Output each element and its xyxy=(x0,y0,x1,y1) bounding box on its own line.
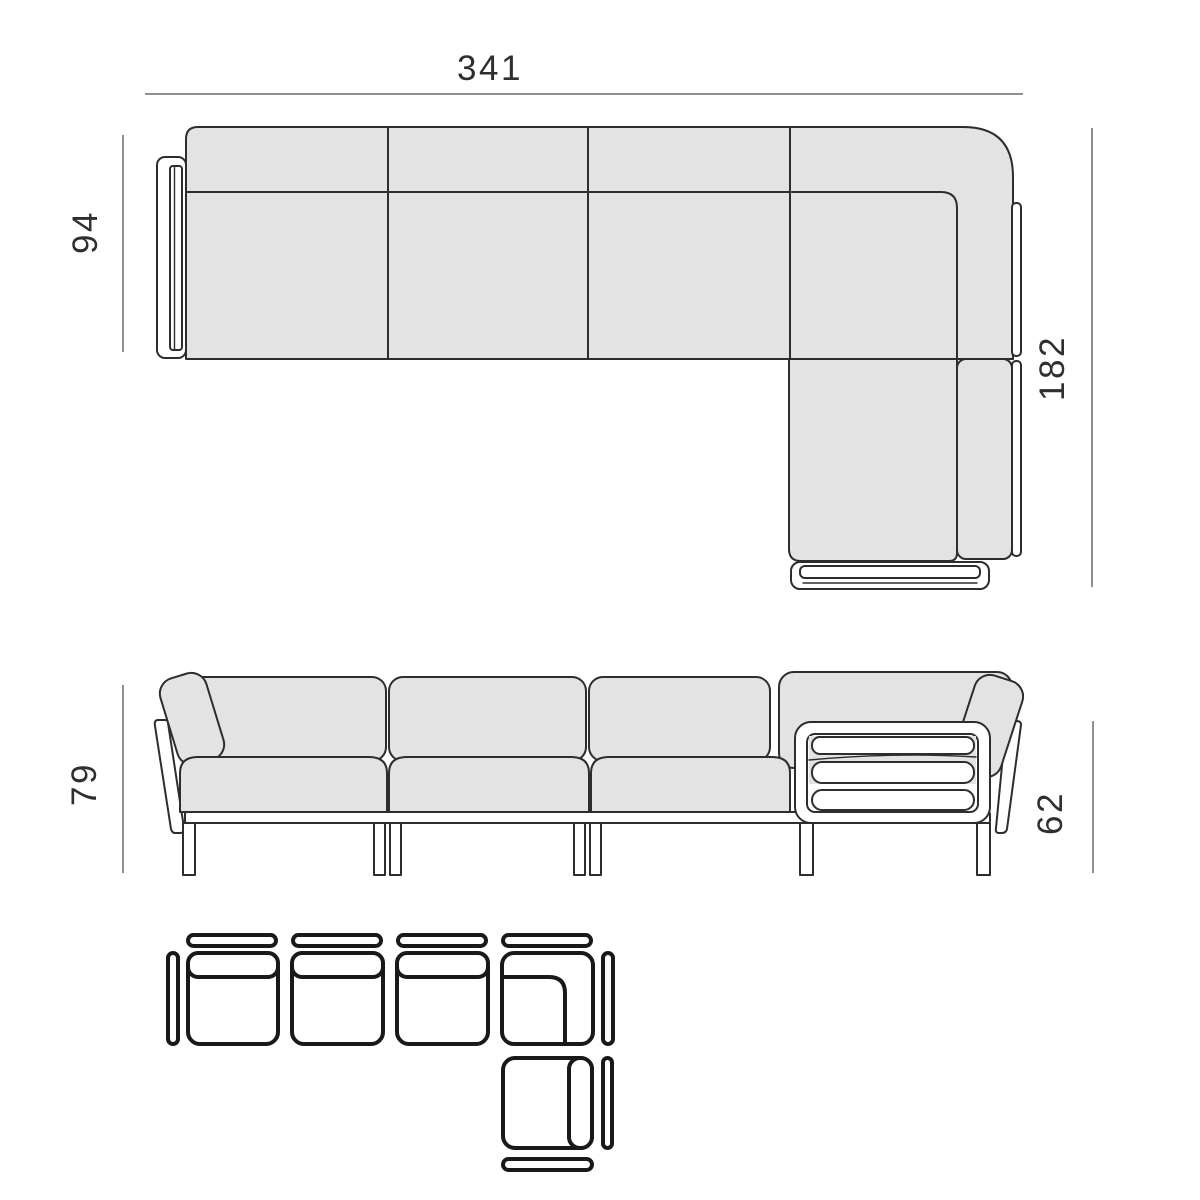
plan-chaise-backrest xyxy=(957,359,1012,559)
module-configuration xyxy=(168,935,613,1170)
module-seat-1-icon xyxy=(188,935,278,1044)
module-1-back-pill xyxy=(188,935,276,946)
front-elevation: 79 62 xyxy=(65,669,1093,875)
front-leg-frame-right xyxy=(977,823,990,875)
dim-label-depth: 94 xyxy=(66,210,105,254)
front-seat-cushion-2 xyxy=(389,757,589,812)
module-1-backrest xyxy=(188,953,278,977)
front-seat-cushion-1 xyxy=(180,757,387,812)
front-leg-frame-left xyxy=(800,823,813,875)
module-corner-icon xyxy=(502,935,613,1044)
module-seat-2-icon xyxy=(292,935,383,1044)
plan-frame-lip-upper xyxy=(1012,203,1021,356)
dim-label-width: 341 xyxy=(457,49,523,88)
module-2-backrest xyxy=(292,953,383,977)
sofa-dimension-sheet: 341 94 182 xyxy=(0,0,1200,1200)
plan-frame-lip-lower xyxy=(1012,361,1021,556)
front-leg-pair2-b xyxy=(590,823,601,875)
plan-chaise-seat xyxy=(789,359,957,561)
module-corner-body xyxy=(502,953,593,1044)
module-2-back-pill xyxy=(293,935,381,946)
front-leg-pair1-a xyxy=(374,823,385,875)
corner-frame-slat-1 xyxy=(812,737,974,754)
front-leg-pair1-b xyxy=(390,823,401,875)
dim-label-frame-height: 62 xyxy=(1031,791,1070,835)
diagram-canvas: 341 94 182 xyxy=(0,0,1200,1200)
module-chaise-right-pill xyxy=(603,1058,612,1148)
front-back-cushion-2 xyxy=(389,677,586,761)
dim-label-height: 79 xyxy=(65,762,104,806)
module-chaise-bottom-pill xyxy=(503,1159,592,1170)
corner-frame-slat-2 xyxy=(812,762,974,783)
module-chaise-end-icon xyxy=(503,1058,612,1170)
plan-sofa-body xyxy=(186,127,1013,359)
front-corner-frame xyxy=(795,722,990,823)
module-corner-back-pill xyxy=(503,935,591,946)
module-chaise-backrest xyxy=(569,1058,592,1148)
top-view-plan: 341 94 182 xyxy=(66,49,1092,589)
module-3-backrest xyxy=(397,953,488,977)
module-corner-right-pill xyxy=(603,953,613,1044)
module-seat-3-icon xyxy=(397,935,488,1044)
corner-frame-slat-3 xyxy=(812,790,974,810)
module-3-back-pill xyxy=(398,935,486,946)
dim-label-chaise-depth: 182 xyxy=(1033,335,1072,401)
module-armrest-left-icon xyxy=(168,953,178,1044)
front-leg-left xyxy=(183,823,195,875)
front-leg-pair2-a xyxy=(574,823,585,875)
front-back-cushion-3 xyxy=(589,677,770,761)
front-seat-cushion-3 xyxy=(591,757,790,812)
